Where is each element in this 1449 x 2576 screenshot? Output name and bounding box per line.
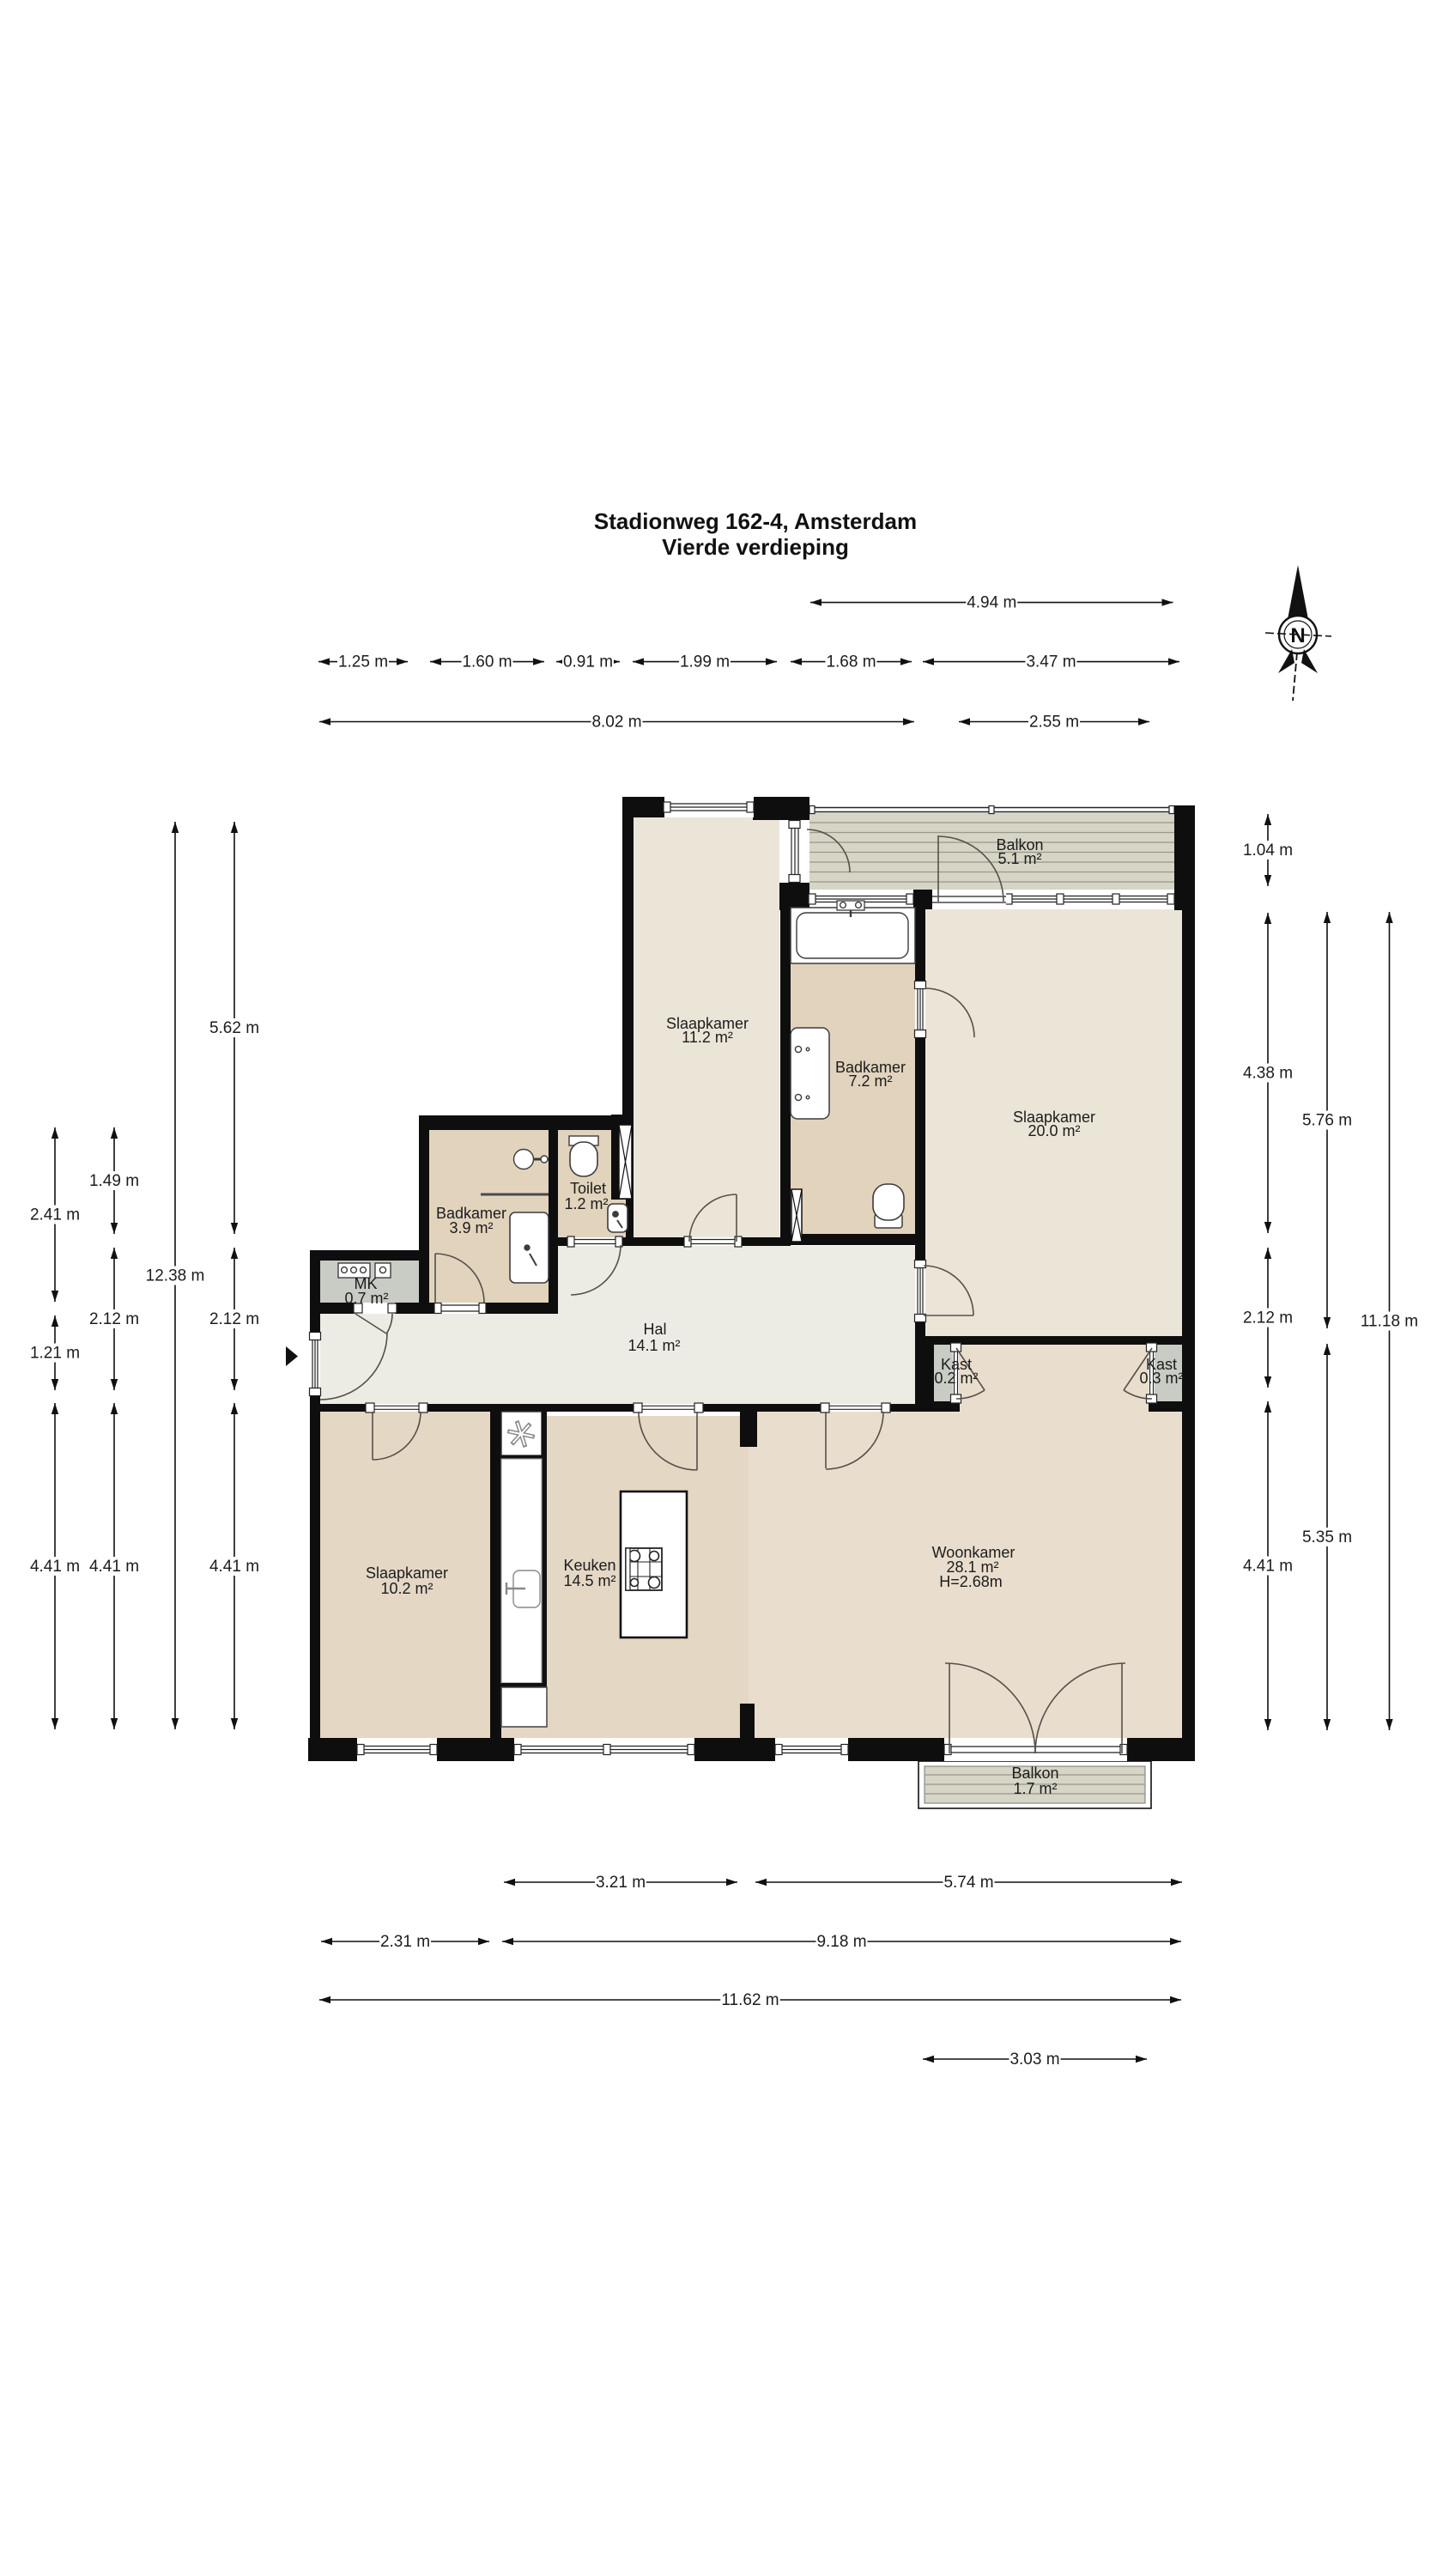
svg-text:0.7 m²: 0.7 m² [344, 1290, 388, 1307]
svg-text:0.3 m²: 0.3 m² [1139, 1370, 1183, 1387]
svg-text:4.94 m: 4.94 m [967, 594, 1016, 612]
svg-text:N: N [1290, 624, 1305, 647]
svg-text:20.0 m²: 20.0 m² [1028, 1122, 1080, 1139]
svg-text:4.41 m: 4.41 m [30, 1558, 80, 1576]
svg-text:8.02 m: 8.02 m [591, 714, 641, 732]
svg-text:2.12 m: 2.12 m [89, 1310, 139, 1328]
svg-text:5.62 m: 5.62 m [209, 1019, 259, 1037]
svg-text:1.25 m: 1.25 m [338, 653, 388, 671]
svg-text:4.41 m: 4.41 m [1243, 1558, 1293, 1576]
svg-text:11.2 m²: 11.2 m² [682, 1029, 733, 1046]
svg-text:11.62 m: 11.62 m [721, 1991, 779, 2009]
svg-text:4.41 m: 4.41 m [89, 1558, 139, 1576]
svg-text:2.12 m: 2.12 m [1243, 1309, 1293, 1327]
svg-text:Vierde verdieping: Vierde verdieping [662, 534, 849, 560]
svg-text:5.1 m²: 5.1 m² [997, 850, 1041, 867]
svg-text:Toilet: Toilet [570, 1180, 606, 1197]
svg-text:4.41 m: 4.41 m [209, 1558, 259, 1576]
svg-text:4.38 m: 4.38 m [1243, 1065, 1293, 1083]
svg-text:0.91 m: 0.91 m [563, 653, 613, 671]
svg-text:1.60 m: 1.60 m [462, 653, 512, 671]
svg-text:2.31 m: 2.31 m [380, 1933, 430, 1951]
svg-text:1.99 m: 1.99 m [680, 653, 730, 671]
svg-text:H=2.68m: H=2.68m [939, 1573, 1003, 1590]
svg-text:1.04 m: 1.04 m [1243, 841, 1293, 860]
svg-text:1.21 m: 1.21 m [30, 1345, 80, 1363]
svg-text:10.2 m²: 10.2 m² [380, 1580, 433, 1597]
svg-text:2.55 m: 2.55 m [1029, 714, 1079, 732]
svg-text:2.41 m: 2.41 m [30, 1206, 80, 1224]
svg-text:3.47 m: 3.47 m [1026, 653, 1076, 671]
svg-text:1.49 m: 1.49 m [89, 1172, 139, 1190]
svg-text:12.38 m: 12.38 m [146, 1267, 205, 1285]
svg-text:7.2 m²: 7.2 m² [848, 1072, 892, 1090]
svg-text:Stadionweg 162-4, Amsterdam: Stadionweg 162-4, Amsterdam [594, 508, 917, 534]
svg-text:5.74 m: 5.74 m [943, 1874, 993, 1892]
svg-text:14.5 m²: 14.5 m² [563, 1572, 615, 1589]
svg-text:1.2 m²: 1.2 m² [564, 1195, 608, 1212]
svg-text:11.18 m: 11.18 m [1361, 1313, 1418, 1331]
svg-text:2.12 m: 2.12 m [209, 1310, 259, 1328]
svg-text:Slaapkamer: Slaapkamer [366, 1564, 448, 1582]
svg-text:0.2 m²: 0.2 m² [934, 1370, 978, 1387]
svg-text:3.03 m: 3.03 m [1009, 2050, 1059, 2069]
svg-text:1.68 m: 1.68 m [826, 653, 876, 671]
svg-text:5.76 m: 5.76 m [1302, 1112, 1352, 1130]
svg-text:1.7 m²: 1.7 m² [1013, 1780, 1057, 1797]
svg-text:3.21 m: 3.21 m [596, 1874, 646, 1892]
svg-text:5.35 m: 5.35 m [1302, 1528, 1352, 1546]
svg-text:Keuken: Keuken [563, 1557, 615, 1574]
svg-text:3.9 m²: 3.9 m² [449, 1219, 493, 1236]
svg-text:9.18 m: 9.18 m [816, 1933, 866, 1951]
svg-text:14.1 m²: 14.1 m² [627, 1337, 680, 1354]
svg-text:Hal: Hal [643, 1321, 666, 1338]
svg-text:Balkon: Balkon [1011, 1765, 1058, 1782]
